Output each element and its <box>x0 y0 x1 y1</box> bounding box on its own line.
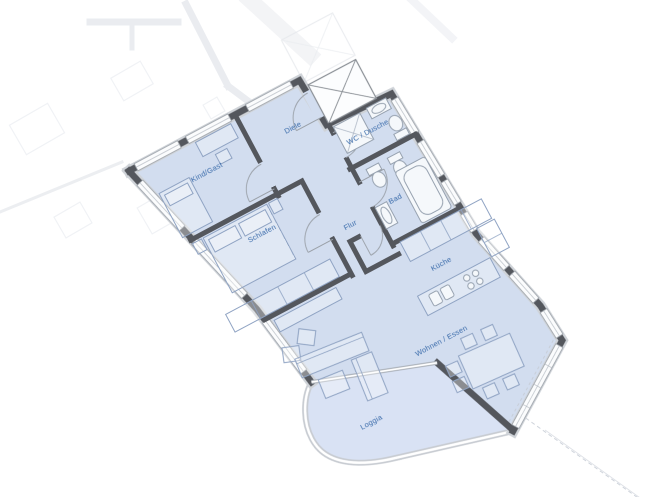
ghost-terrace-line <box>545 430 650 497</box>
ghost-furniture <box>9 103 64 154</box>
ghost-corridor <box>250 0 310 55</box>
ghost-terrace-dashed <box>520 414 648 497</box>
ghost-wall <box>412 0 452 38</box>
ghost-wall <box>186 4 228 86</box>
floor-plan-page: Kind/Gast Diele WC / Dusche Bad Schlafen… <box>0 0 650 497</box>
apartment-plan: Kind/Gast Diele WC / Dusche Bad Schlafen… <box>108 0 593 497</box>
ghost-furniture <box>111 61 153 101</box>
floor-plan-svg: Kind/Gast Diele WC / Dusche Bad Schlafen… <box>0 0 650 497</box>
ghost-facade-line <box>0 162 122 212</box>
ghost-furniture <box>54 202 92 238</box>
